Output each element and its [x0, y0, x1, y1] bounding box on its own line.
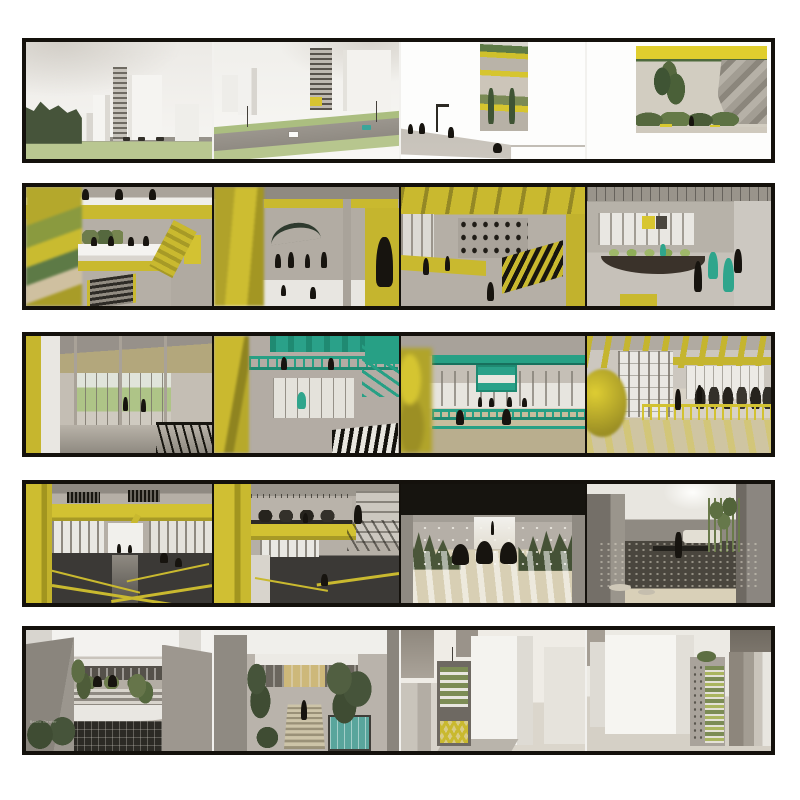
- person-silhouette: [82, 189, 89, 200]
- person-silhouette: [522, 398, 527, 407]
- yellow-column: [26, 336, 41, 453]
- window-wall: [273, 378, 354, 418]
- render-strip-1: [22, 38, 775, 163]
- car-silhouette: [288, 131, 299, 138]
- person-silhouette: [697, 385, 702, 403]
- tree-mass: [240, 657, 277, 720]
- person-silhouette: [128, 545, 132, 553]
- side-wall: [572, 515, 585, 603]
- ceiling-beams: [401, 187, 585, 214]
- person-silhouette: [117, 544, 121, 554]
- yellow-column: [214, 484, 251, 603]
- sectioned-building: [437, 661, 470, 746]
- striped-railing: [332, 423, 398, 453]
- person-silhouette: [456, 410, 464, 425]
- bamboo-foliage: [705, 496, 744, 532]
- tree-mass: [321, 654, 373, 724]
- yellow-floor-band: [620, 294, 657, 306]
- building-slab: [128, 75, 162, 141]
- tree: [509, 88, 515, 124]
- window-wall: [149, 521, 212, 553]
- white-wall: [41, 336, 60, 453]
- teal-stair-railing: [362, 341, 399, 397]
- tree: [488, 88, 494, 124]
- planting: [82, 230, 123, 245]
- gray-sky-wedge: [401, 630, 434, 678]
- render-basketball-court: [399, 336, 585, 453]
- building-slab: [175, 104, 199, 141]
- render-fitness-hall: [585, 336, 771, 453]
- person-teal-jacket: [708, 252, 717, 278]
- window-wall: [260, 540, 319, 557]
- render-corridor-overlook: [212, 187, 398, 306]
- dark-sign: [656, 216, 667, 229]
- person-silhouette: [445, 256, 451, 271]
- person-silhouette: [448, 127, 454, 138]
- stepping-stone: [609, 584, 631, 591]
- yellow-fin: [26, 484, 52, 603]
- tan-ceiling: [60, 336, 213, 373]
- gym-equipment: [257, 510, 340, 522]
- person-silhouette: [507, 397, 512, 408]
- column: [119, 336, 122, 425]
- teal-ceiling-structure: [270, 336, 366, 352]
- person-silhouette: [275, 254, 281, 268]
- bright-opening: [108, 523, 143, 553]
- planting-bed: [636, 112, 738, 126]
- render-running-track-a: [26, 484, 212, 603]
- render-glass-gallery: [26, 336, 212, 453]
- person-silhouette: [123, 397, 128, 411]
- watermark-text: Bravo Center: [30, 720, 57, 724]
- yellow-fin: [214, 187, 264, 306]
- person-silhouette: [489, 398, 494, 407]
- white-slab-building: [605, 635, 693, 734]
- person-silhouette: [675, 389, 681, 410]
- car-silhouette: [362, 125, 371, 130]
- track-lane-line: [126, 563, 208, 582]
- escalator: [87, 274, 136, 306]
- yellow-column: [566, 214, 584, 306]
- column: [74, 336, 77, 425]
- tree-mass: [67, 654, 95, 702]
- car-silhouette: [156, 137, 163, 141]
- gridded-tower-yellow-base: [310, 48, 332, 110]
- yellow-sign: [642, 216, 655, 229]
- render-courtyard-terrace-a: Bravo Center: [26, 630, 212, 751]
- render-gray-atrium: [585, 187, 771, 306]
- render-board-page: Bravo Center: [0, 0, 800, 800]
- floor-band: [636, 127, 767, 133]
- concrete-column: [343, 199, 350, 306]
- white-slab-building: [471, 636, 534, 745]
- railing-diagonals: [347, 520, 399, 551]
- person-silhouette: [143, 236, 149, 247]
- roof-planting: [697, 651, 716, 662]
- light-pole: [247, 106, 248, 127]
- person-silhouette: [305, 254, 311, 268]
- city-blocks: [729, 652, 771, 746]
- teal-beam: [432, 355, 585, 366]
- person-silhouette: [376, 237, 393, 287]
- person-silhouette: [301, 700, 307, 719]
- yellow-foreground-blur: [399, 348, 432, 453]
- person-silhouette: [734, 249, 741, 273]
- balcony-edge: [601, 256, 704, 274]
- floor-planks: [412, 551, 574, 603]
- person-silhouette: [149, 189, 156, 200]
- person-silhouette: [694, 261, 702, 292]
- column: [164, 336, 167, 425]
- courtyard-image: [636, 46, 767, 134]
- basketball-backboard: [476, 365, 517, 392]
- sectioned-building: [690, 657, 725, 747]
- tree-mass: [123, 666, 155, 710]
- person-silhouette: [354, 505, 361, 524]
- person-silhouette: [321, 252, 327, 267]
- ceiling-vent: [128, 490, 160, 502]
- render-strip-4: [22, 480, 775, 607]
- render-zen-garden: [585, 484, 771, 603]
- seated-silhouette: [93, 676, 102, 687]
- seated-silhouette: [108, 675, 117, 687]
- render-bike-hub: [399, 187, 585, 306]
- render-strip-2: [22, 183, 775, 310]
- render-street-entry: [399, 42, 585, 159]
- render-boulevard: [212, 42, 398, 159]
- render-courtyard-terrace-b: [212, 630, 398, 751]
- person-silhouette: [141, 399, 146, 412]
- tree-mass: [26, 97, 82, 144]
- render-strip-3: [22, 332, 775, 457]
- canopy-arc: [268, 219, 320, 245]
- side-wall: [401, 515, 414, 603]
- person-silhouette: [160, 553, 167, 563]
- person-silhouette: [321, 574, 327, 586]
- yellow-fin: [214, 336, 249, 453]
- teal-rail-line: [432, 426, 585, 429]
- tree-mass: [652, 61, 686, 112]
- dark-railing: [156, 422, 212, 453]
- shrub-mass: [251, 724, 292, 751]
- person-silhouette: [91, 237, 97, 247]
- person-silhouette: [419, 123, 425, 135]
- car-silhouette: [123, 137, 130, 141]
- person-silhouette: [675, 532, 681, 558]
- building-slab: [222, 75, 239, 112]
- car-silhouette: [138, 137, 145, 141]
- curb-line: [511, 145, 585, 147]
- courtyard-wall: [162, 645, 212, 751]
- stepping-stone: [638, 589, 655, 595]
- render-aerial-section-b: [585, 630, 771, 751]
- person-silhouette: [128, 237, 134, 247]
- person-teal-jacket: [723, 258, 734, 291]
- yellow-lattice: [440, 721, 468, 743]
- person-silhouette: [487, 282, 494, 301]
- building-block: [93, 95, 110, 142]
- person-silhouette: [115, 189, 122, 200]
- cyclist-silhouette: [493, 143, 502, 154]
- render-aerial-section-a: [399, 630, 585, 751]
- white-slab-building: [544, 647, 585, 744]
- person-silhouette: [423, 258, 429, 275]
- person-silhouette: [281, 357, 287, 370]
- light-pole: [376, 101, 377, 122]
- courtyard-wall: [387, 630, 398, 751]
- flag-pole: [452, 647, 453, 662]
- seated-silhouette: [476, 541, 493, 564]
- render-teal-balcony: [212, 336, 398, 453]
- person-silhouette: [408, 124, 414, 135]
- person-silhouette: [502, 409, 511, 425]
- yellow-beam: [264, 199, 399, 209]
- render-street-towers: [26, 42, 212, 159]
- person-teal-jacket: [297, 392, 306, 408]
- ceiling-grid: [587, 187, 771, 201]
- person-silhouette: [689, 116, 694, 127]
- person-silhouette: [328, 358, 334, 370]
- window-wall: [52, 521, 104, 553]
- street-lamp: [436, 104, 438, 132]
- track-lane-line: [316, 572, 398, 587]
- yellow-railing: [642, 404, 771, 420]
- gridded-tower: [113, 67, 127, 142]
- building-slab: [343, 50, 391, 111]
- stained-glass-wall: [26, 187, 82, 306]
- ceiling-vent: [67, 492, 101, 503]
- person-silhouette: [288, 252, 294, 267]
- render-climbing-courtyard: [585, 42, 771, 159]
- facade-windows: [692, 664, 706, 739]
- green-terraces: [705, 666, 723, 743]
- render-strip-5: Bravo Center: [22, 626, 775, 755]
- building-slice: [480, 42, 528, 131]
- person-silhouette: [281, 285, 287, 297]
- person-teal-jacket: [660, 244, 666, 256]
- yellow-floor: [401, 255, 486, 276]
- render-meditation-room: [399, 484, 585, 603]
- person-silhouette: [310, 287, 316, 299]
- render-running-track-b: [212, 484, 398, 603]
- seated-silhouette: [500, 542, 517, 563]
- render-atrium-escalator: [26, 187, 212, 306]
- person-silhouette: [175, 558, 182, 568]
- green-terraces: [440, 667, 468, 708]
